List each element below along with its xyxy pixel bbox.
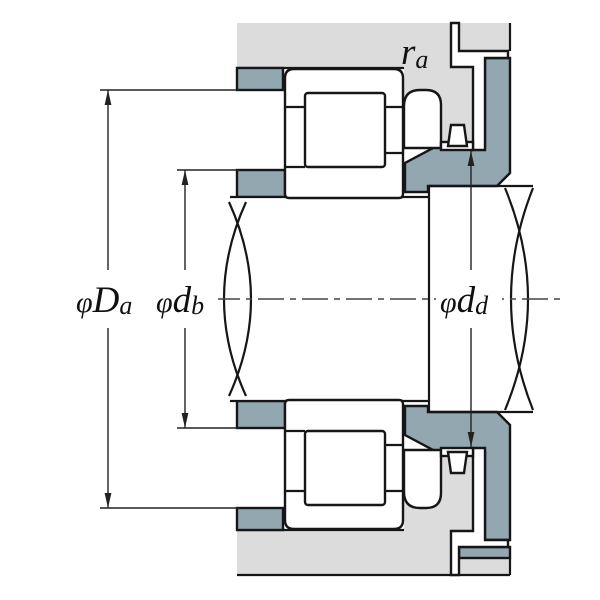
housing-shoulder-spacer-bottom [237, 508, 283, 530]
collar-foot-lower [459, 547, 510, 558]
shaft-shoulder-spacer-bottom [237, 401, 285, 428]
shaft-shoulder-spacer-top [237, 170, 285, 197]
roller-upper [305, 93, 385, 167]
outer-ring-flange-lower [404, 450, 441, 508]
bearing-section-svg: φDa φdb φdd ra [0, 0, 600, 600]
locating-rib-lower [448, 452, 467, 473]
housing-upper-right-block [459, 23, 510, 51]
housing-lower-right-block [459, 558, 510, 575]
housing-shoulder-spacer-top [237, 68, 283, 90]
locating-rib-upper [448, 125, 467, 146]
technical-drawing: φDa φdb φdd ra [0, 0, 600, 600]
roller-lower [305, 431, 385, 505]
outer-ring-flange-upper [404, 90, 441, 148]
